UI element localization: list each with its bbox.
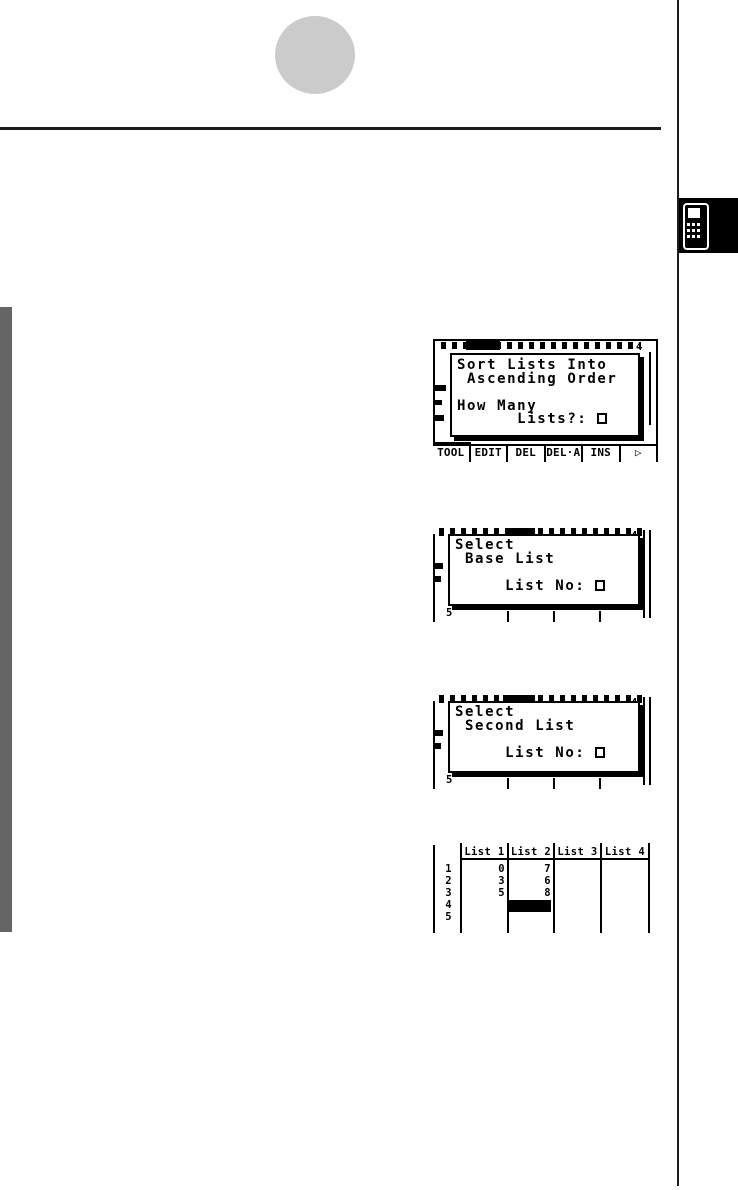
list4-column-label: 4 xyxy=(636,342,643,352)
cell-list2-row1: 7 xyxy=(511,864,551,875)
column-separator-stub xyxy=(507,611,509,622)
dialog-prompt-line: List No: xyxy=(455,580,638,594)
margin-rule xyxy=(677,0,679,1186)
row-fragment xyxy=(435,730,443,736)
row-fragment xyxy=(435,415,444,421)
column-header-list3: List 3 xyxy=(555,847,600,858)
base-list-dialog-box: Select Base List List No: xyxy=(448,534,640,606)
chapter-sidebar-bar xyxy=(0,307,12,932)
row-fragment xyxy=(435,563,443,569)
row-fragment xyxy=(435,743,441,749)
column-separator-stub xyxy=(553,611,555,622)
input-cursor xyxy=(597,413,607,424)
dialog-line: Base List xyxy=(455,553,638,567)
row-number: 2 xyxy=(438,876,452,887)
manual-page: { "screens": { "sort": { "lines": ["Sort… xyxy=(0,0,738,1190)
list-no-prompt: List No: xyxy=(455,745,595,761)
screenshot-sort-dialog: 4 Sort Lists Into Ascending Order How Ma… xyxy=(433,339,659,463)
function-key-menu: TOOL EDIT DEL DEL·A INS ▷ xyxy=(433,446,658,462)
row-number: 1 xyxy=(438,864,452,875)
menu-item-del-a: DEL·A xyxy=(544,446,582,462)
screenshot-second-list-dialog: 4 Select Second List List No: 5 xyxy=(433,693,659,793)
cell-list2-row2: 6 xyxy=(511,876,551,887)
second-list-dialog-box: Select Second List List No: xyxy=(448,701,640,773)
cell-list1-row2: 3 xyxy=(463,876,505,887)
calculator-icon xyxy=(683,203,709,250)
column-header-list2: List 2 xyxy=(509,847,553,858)
dialog-line: Second List xyxy=(455,720,638,734)
column-separator-stub xyxy=(599,611,601,622)
row-number: 5 xyxy=(438,912,452,923)
dialog-prompt-line: Lists?: xyxy=(457,413,638,427)
selected-cell-highlight xyxy=(509,900,551,912)
cell-list1-row3: 5 xyxy=(463,888,505,899)
column-header-list1: List 1 xyxy=(462,847,507,858)
input-cursor xyxy=(595,580,605,591)
screen-left-border xyxy=(433,845,435,933)
row-fragment xyxy=(435,576,441,582)
screenshot-list-table: List 1 List 2 List 3 List 4 1 2 3 4 5 0 … xyxy=(433,843,653,934)
menu-item-tool: TOOL xyxy=(433,446,469,462)
row-fragment xyxy=(435,400,442,405)
row5-label: 5 xyxy=(446,608,453,618)
sort-dialog-box: Sort Lists Into Ascending Order How Many… xyxy=(450,353,640,437)
section-divider-rule xyxy=(0,127,661,130)
row-number: 4 xyxy=(438,900,452,911)
row-number: 3 xyxy=(438,888,452,899)
calculator-icon-screen xyxy=(688,208,700,218)
row-fragment xyxy=(435,385,446,391)
header-underline xyxy=(460,858,650,860)
screen-right-border xyxy=(649,697,651,785)
dialog-line: Ascending Order xyxy=(457,373,638,387)
column-separator-line xyxy=(643,530,645,618)
screen-right-border xyxy=(649,530,651,618)
row5-label: 5 xyxy=(446,775,453,785)
column-separator-stub xyxy=(507,778,509,789)
cell-list2-row3: 8 xyxy=(511,888,551,899)
cell-list1-row1: 0 xyxy=(463,864,505,875)
column-separator-stub xyxy=(553,778,555,789)
table-grid-line xyxy=(648,843,650,933)
menu-item-edit: EDIT xyxy=(469,446,507,462)
input-cursor xyxy=(595,747,605,758)
column-separator-stub xyxy=(599,778,601,789)
menu-item-next-page-icon: ▷ xyxy=(619,446,659,462)
column-separator-line xyxy=(649,352,651,425)
column-header-list4: List 4 xyxy=(602,847,648,858)
highlighted-header-fragment xyxy=(466,341,500,350)
list-no-prompt: List No: xyxy=(455,578,595,594)
margin-tab xyxy=(679,198,738,253)
page-accent-circle xyxy=(275,16,355,94)
menu-item-ins: INS xyxy=(581,446,619,462)
screenshot-base-list-dialog: 4 Select Base List List No: 5 xyxy=(433,526,659,626)
menu-item-del: DEL xyxy=(506,446,544,462)
how-many-lists-prompt: Lists?: xyxy=(457,411,597,427)
dialog-prompt-line: List No: xyxy=(455,747,638,761)
column-separator-line xyxy=(643,697,645,785)
